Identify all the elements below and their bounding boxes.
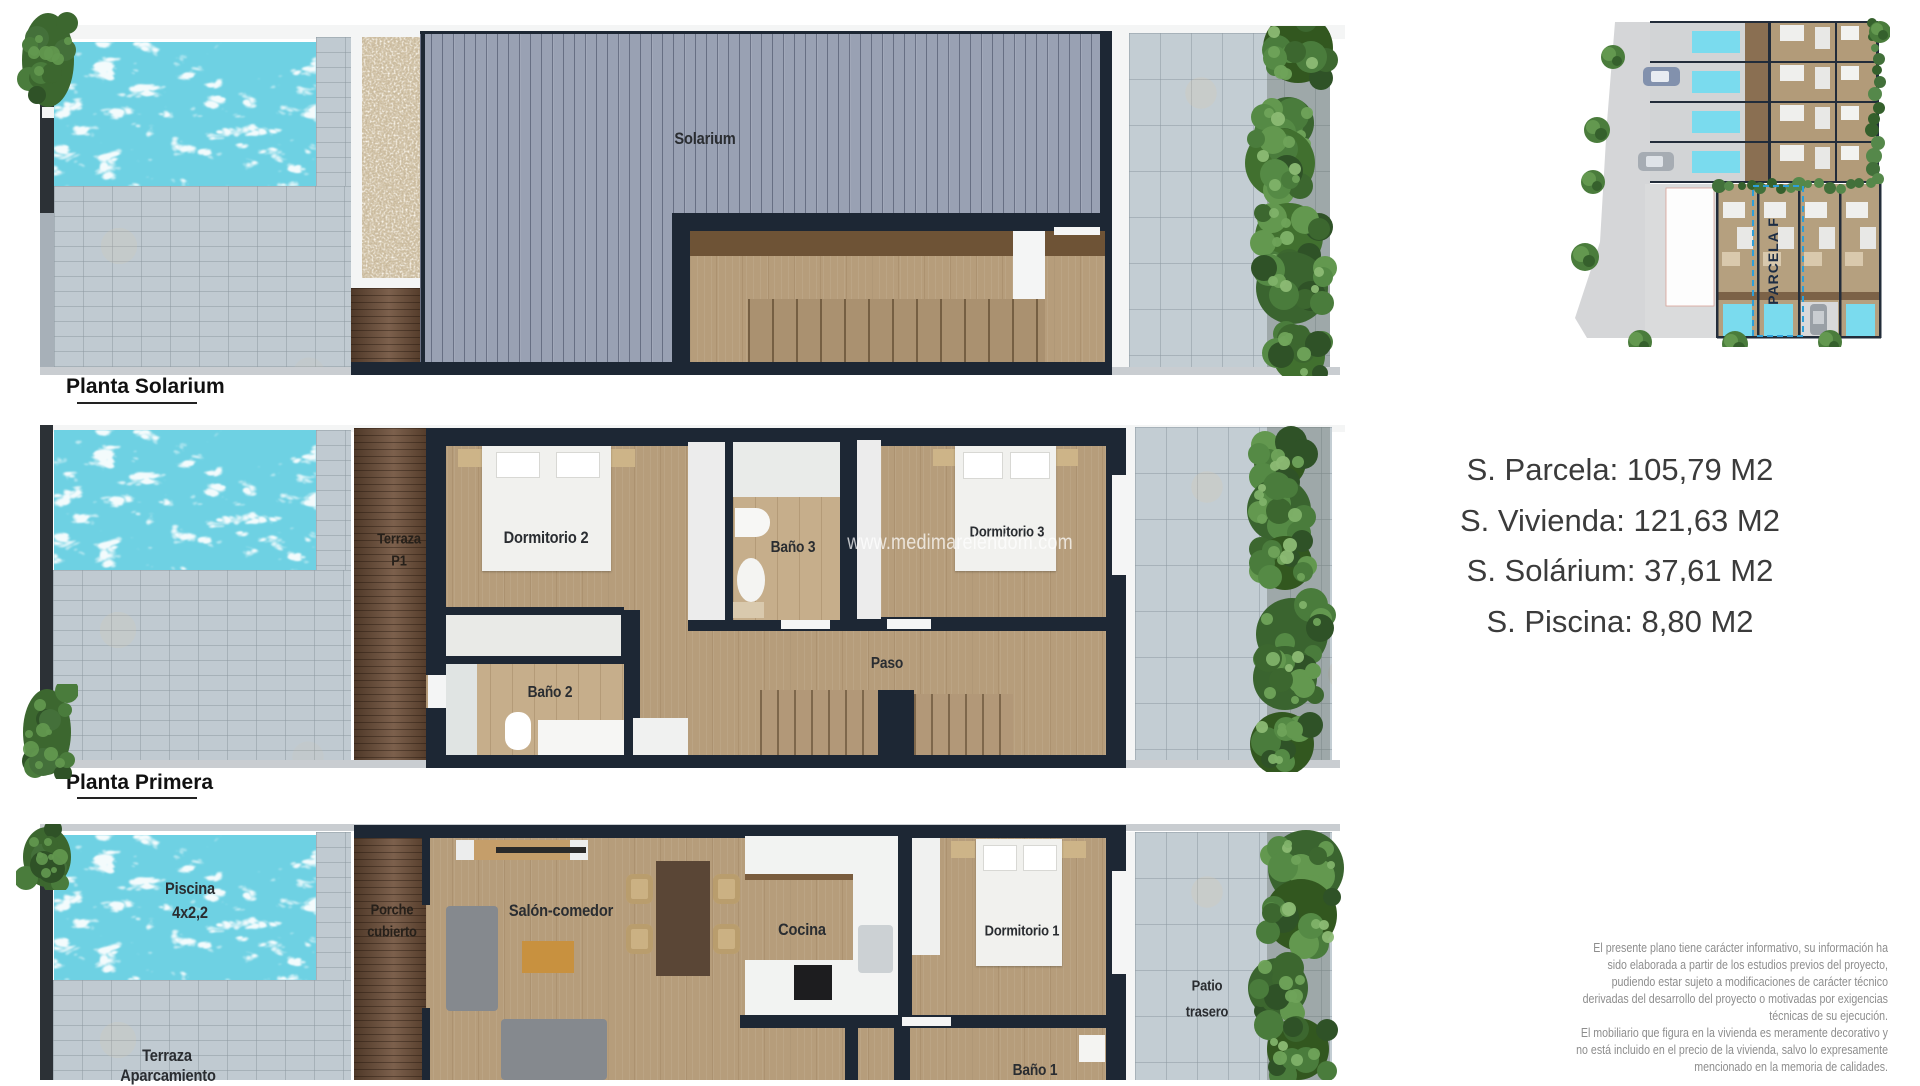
svg-text:PARCELA F: PARCELA F xyxy=(1765,217,1781,305)
